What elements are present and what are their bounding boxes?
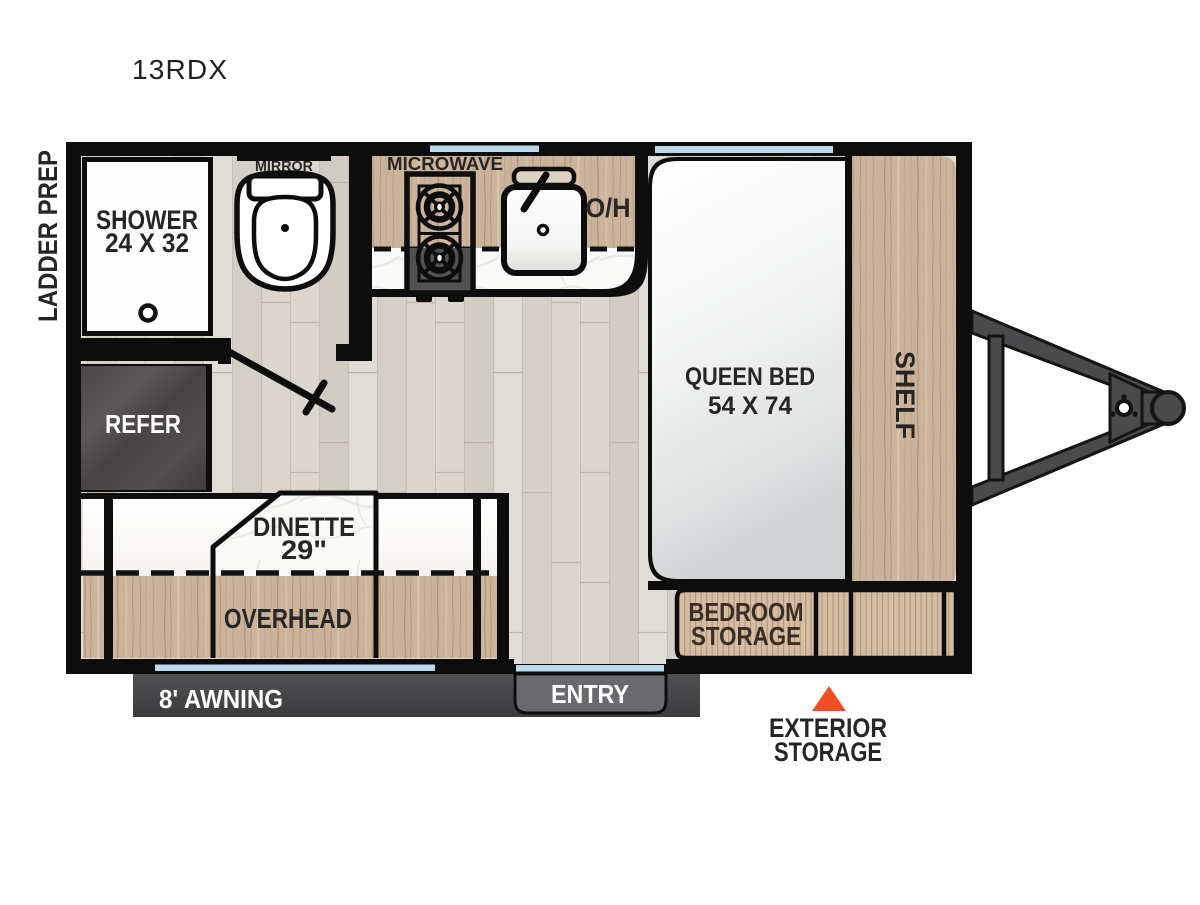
svg-text:LADDER PREP: LADDER PREP <box>33 150 63 322</box>
svg-text:SHELF: SHELF <box>890 351 920 439</box>
svg-text:O/H: O/H <box>586 193 631 223</box>
svg-text:13RDX: 13RDX <box>132 54 227 85</box>
svg-text:24 X 32: 24 X 32 <box>105 228 189 258</box>
svg-text:QUEEN BED: QUEEN BED <box>685 363 815 391</box>
svg-text:ENTRY: ENTRY <box>551 679 629 709</box>
svg-text:MICROWAVE: MICROWAVE <box>387 154 503 174</box>
svg-text:STORAGE: STORAGE <box>774 737 882 767</box>
svg-text:REFER: REFER <box>105 409 181 439</box>
svg-text:29": 29" <box>281 535 327 565</box>
svg-text:OVERHEAD: OVERHEAD <box>224 603 352 634</box>
svg-text:8' AWNING: 8' AWNING <box>159 684 283 714</box>
svg-text:STORAGE: STORAGE <box>691 621 801 651</box>
svg-text:54 X 74: 54 X 74 <box>708 392 792 420</box>
